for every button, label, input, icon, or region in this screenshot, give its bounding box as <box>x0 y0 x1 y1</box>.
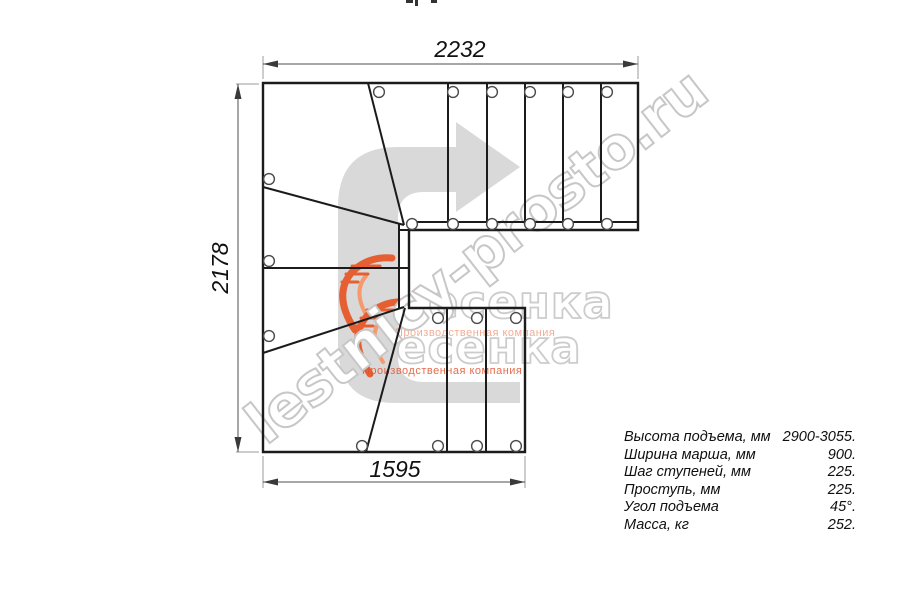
screw-marker <box>264 174 275 185</box>
screw-marker <box>433 441 444 452</box>
screw-marker <box>264 331 275 342</box>
spec-value: 45°. <box>830 499 856 517</box>
spec-row: Высота подъема, мм 2900-3055. <box>624 429 856 447</box>
spec-label: Масса, кг <box>624 517 689 535</box>
screw-marker <box>448 219 459 230</box>
screw-marker <box>357 441 368 452</box>
screw-marker <box>563 87 574 98</box>
spec-row: Угол подъема 45°. <box>624 499 856 517</box>
screw-marker <box>433 313 444 324</box>
cropped-text-fragment <box>406 0 437 6</box>
dimension-top: 2232 <box>263 36 638 79</box>
dimension-left-value: 2178 <box>207 242 233 294</box>
screw-marker <box>472 313 483 324</box>
dimension-bottom: 1595 <box>263 456 525 488</box>
screw-marker <box>487 87 498 98</box>
screw-marker <box>472 441 483 452</box>
spec-row: Шаг ступеней, мм 225. <box>624 464 856 482</box>
screw-marker <box>487 219 498 230</box>
spec-label: Проступь, мм <box>624 482 720 500</box>
spec-label: Высота подъема, мм <box>624 429 771 447</box>
spec-value: 225. <box>828 482 856 500</box>
staircase-drawing-page: есенка Производственная компания есенка … <box>0 0 900 600</box>
spec-row: Масса, кг 252. <box>624 517 856 535</box>
spec-label: Угол подъема <box>624 499 719 517</box>
screw-marker <box>511 441 522 452</box>
spec-label: Шаг ступеней, мм <box>624 464 751 482</box>
spec-value: 2900-3055. <box>783 429 856 447</box>
spec-row: Проступь, мм 225. <box>624 482 856 500</box>
screw-marker <box>602 219 613 230</box>
screw-marker <box>525 87 536 98</box>
screw-marker <box>264 256 275 267</box>
screw-marker <box>374 87 385 98</box>
screw-marker <box>511 313 522 324</box>
spec-value: 900. <box>828 447 856 465</box>
screw-marker <box>407 219 418 230</box>
spec-row: Ширина марша, мм 900. <box>624 447 856 465</box>
spec-value: 252. <box>828 517 856 535</box>
spec-value: 225. <box>828 464 856 482</box>
spec-label: Ширина марша, мм <box>624 447 756 465</box>
screw-marker <box>563 219 574 230</box>
screw-marker <box>525 219 536 230</box>
dimension-top-value: 2232 <box>433 36 485 62</box>
screw-marker <box>448 87 459 98</box>
dimension-bottom-value: 1595 <box>369 456 420 482</box>
spec-table: Высота подъема, мм 2900-3055. Ширина мар… <box>624 429 856 534</box>
screw-marker <box>602 87 613 98</box>
